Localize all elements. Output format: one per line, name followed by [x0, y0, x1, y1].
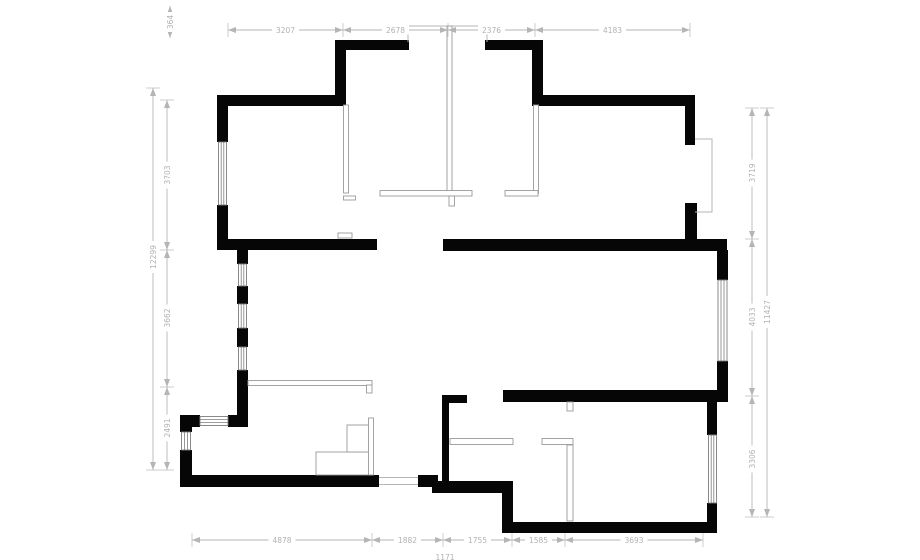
wall-segment	[717, 250, 728, 280]
dim-label-right-2: 4033	[748, 307, 757, 326]
wall-segment	[685, 95, 695, 145]
wall-segment	[217, 95, 345, 106]
dim-label-top-1: 3207	[276, 26, 295, 35]
wall-segment	[707, 503, 717, 533]
door-frame	[567, 402, 573, 411]
wall-segment	[180, 415, 192, 432]
window	[239, 347, 247, 370]
partition	[542, 439, 573, 445]
wall-segment	[532, 40, 543, 106]
entry-threshold	[379, 478, 418, 485]
wall-segment	[237, 249, 248, 264]
dim-label-right-1: 3719	[748, 163, 757, 182]
entry-steps	[316, 418, 374, 475]
dim-label-top-2: 2678	[386, 26, 405, 35]
dim-label-left-2: 3662	[163, 308, 172, 327]
window	[718, 280, 727, 361]
wall-segment	[180, 475, 379, 487]
partition	[505, 191, 538, 197]
partition	[450, 439, 513, 445]
wall-segment	[345, 40, 409, 50]
floor-plan-canvas: 3207 2678 2376 4183 364 4878 1882 1755 1…	[0, 0, 920, 560]
dim-label-left-1: 3703	[163, 165, 172, 184]
wall-segment	[237, 286, 248, 304]
window	[239, 304, 247, 328]
partition	[447, 26, 452, 193]
wall-segment	[717, 361, 728, 402]
window	[709, 435, 717, 503]
dim-label-bottom-5: 3693	[624, 536, 643, 545]
door-frame	[449, 196, 455, 206]
partition	[534, 105, 539, 193]
dim-label-top-3: 2376	[482, 26, 501, 35]
wall-segment	[217, 239, 377, 250]
window	[239, 264, 247, 286]
exterior-walls	[180, 40, 728, 533]
wall-segment	[502, 522, 717, 533]
dimension-right: 3719 4033 3306 11427	[745, 108, 774, 517]
dim-label-right-overall: 11427	[763, 300, 772, 324]
wall-segment	[442, 395, 449, 483]
dim-label-top-4: 4183	[603, 26, 622, 35]
counter-end	[367, 385, 373, 393]
window	[200, 417, 228, 426]
wall-segment	[535, 95, 695, 106]
window	[219, 142, 227, 205]
dimension-bottom: 4878 1882 1755 1585 3693 1171	[192, 533, 703, 560]
dim-label-top-offset: 364	[166, 15, 175, 30]
window	[182, 432, 191, 450]
dim-label-bottom-partial: 1171	[435, 553, 454, 560]
wall-segment	[685, 203, 697, 239]
dim-label-bottom-3: 1755	[468, 536, 487, 545]
door-frame	[344, 196, 356, 200]
bay-window	[695, 139, 712, 212]
dim-label-right-3: 3306	[748, 449, 757, 468]
partition	[344, 105, 349, 193]
dim-label-bottom-1: 4878	[272, 536, 291, 545]
dimension-top-offset: 364	[166, 6, 176, 38]
wall-segment	[503, 390, 707, 402]
dim-label-bottom-2: 1882	[398, 536, 417, 545]
wall-segment	[228, 415, 247, 427]
partition	[567, 445, 573, 521]
dimension-left: 12299 3703 3662 2491	[146, 88, 174, 470]
dimension-top: 3207 2678 2376 4183 364	[166, 6, 691, 38]
counter	[248, 381, 372, 386]
wall-segment	[237, 328, 248, 347]
floor-plan-page: 3207 2678 2376 4183 364 4878 1882 1755 1…	[0, 0, 920, 560]
wall-segment	[217, 95, 228, 142]
dim-label-left-3: 2491	[163, 418, 172, 437]
partition	[380, 191, 472, 197]
wall-segment	[442, 395, 467, 403]
wall-segment	[335, 40, 346, 106]
dim-label-left-overall: 12299	[149, 245, 158, 269]
dim-label-bottom-4: 1585	[529, 536, 548, 545]
wall-segment	[443, 239, 727, 251]
door-leaf	[338, 233, 352, 238]
